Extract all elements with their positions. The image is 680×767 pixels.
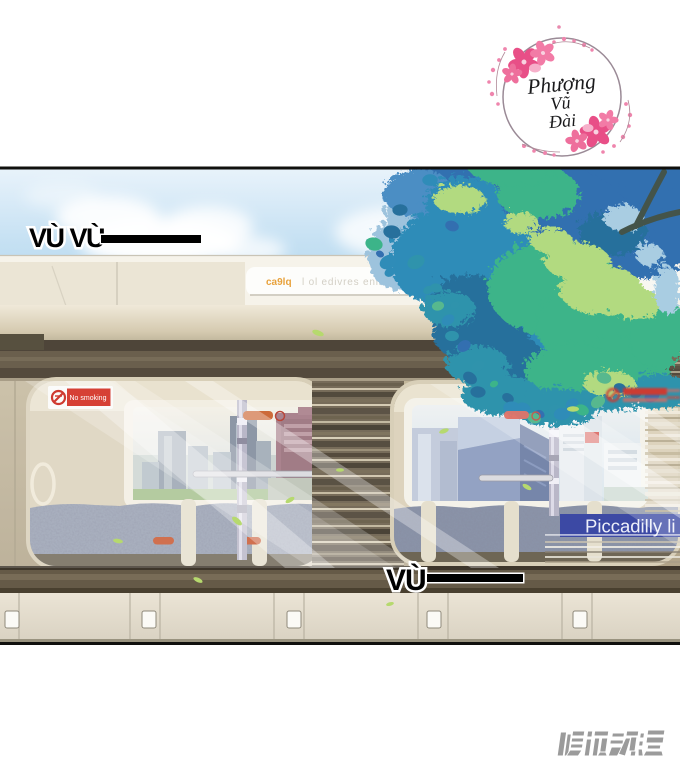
svg-text:ca9lq: ca9lq: [266, 277, 292, 288]
svg-text:VÙ: VÙ: [386, 563, 426, 597]
svg-text:VÙ VÙ: VÙ VÙ: [29, 222, 104, 253]
svg-text:No smoking: No smoking: [70, 395, 107, 402]
svg-text:Đài: Đài: [547, 110, 577, 132]
